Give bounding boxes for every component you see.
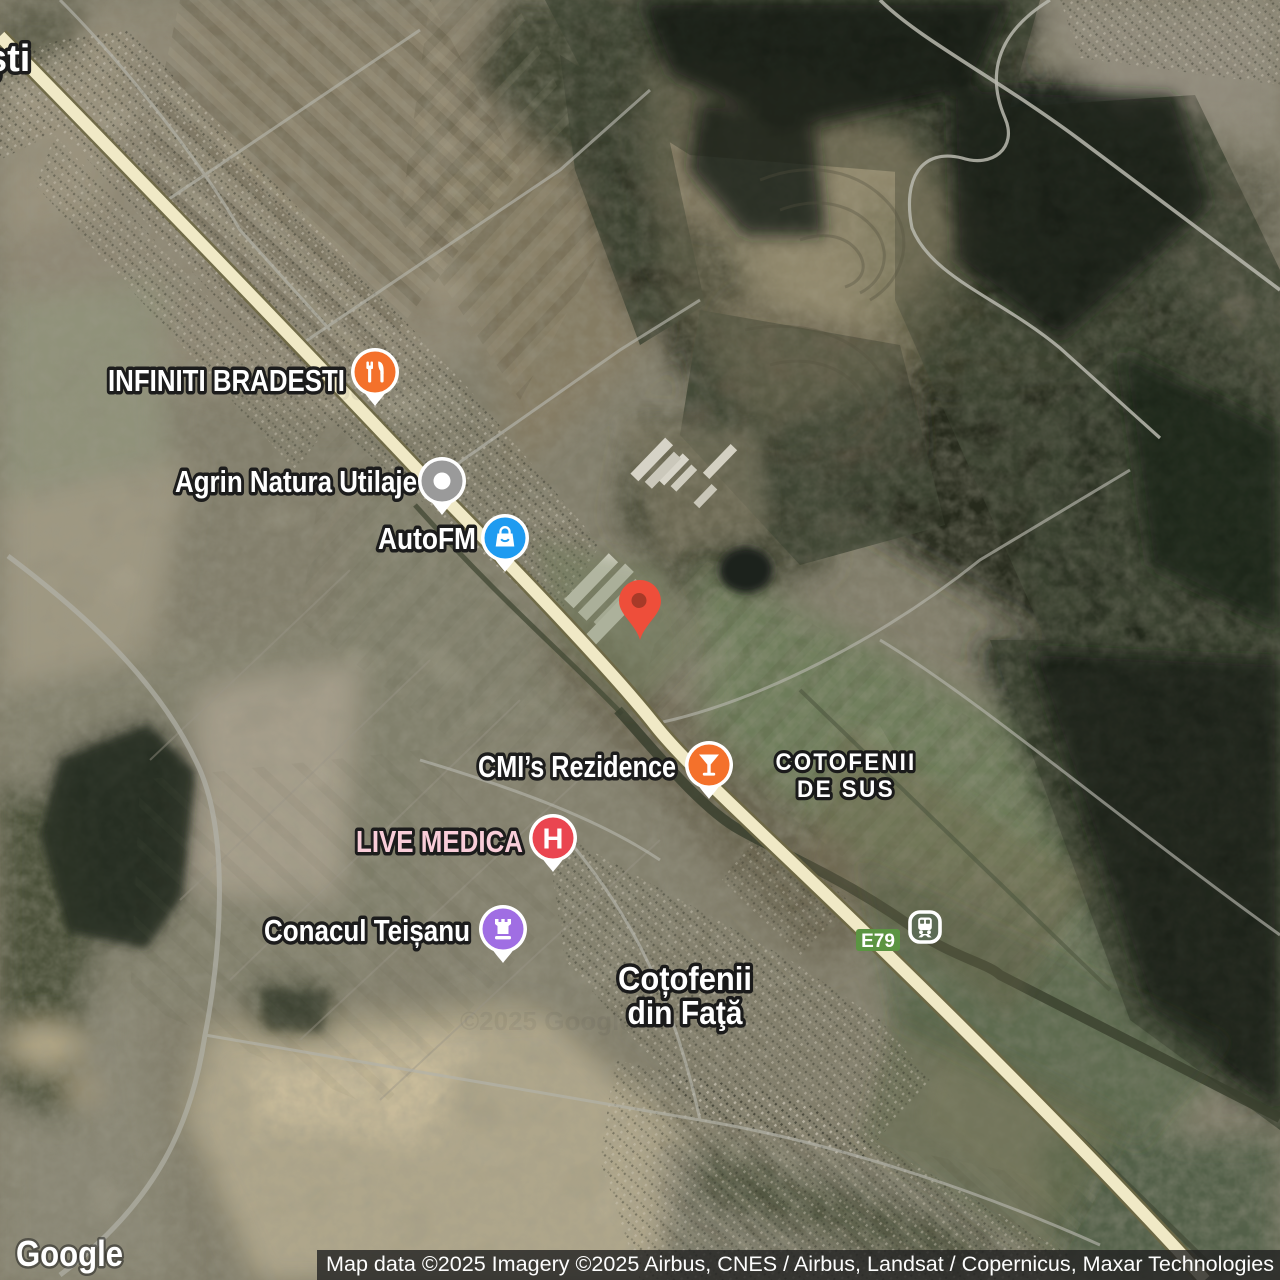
svg-text:Map data ©2025 Imagery ©2025 A: Map data ©2025 Imagery ©2025 Airbus, CNE… xyxy=(326,1252,1274,1276)
svg-text:INFINITI BRADESTI: INFINITI BRADESTI xyxy=(108,363,345,398)
svg-text:Google: Google xyxy=(16,1233,123,1274)
svg-text:ști: ști xyxy=(0,38,30,80)
svg-text:din Faţă: din Faţă xyxy=(628,994,744,1031)
svg-text:LIVE MEDICA: LIVE MEDICA xyxy=(356,824,523,859)
svg-text:CMI’s Rezidence: CMI’s Rezidence xyxy=(478,749,676,784)
svg-text:©2025 Google: ©2025 Google xyxy=(460,1006,634,1036)
svg-text:DE SUS: DE SUS xyxy=(797,776,895,803)
svg-text:COTOFENII: COTOFENII xyxy=(776,749,917,776)
svg-text:Coțofenii: Coțofenii xyxy=(618,960,752,998)
svg-text:H: H xyxy=(543,824,564,856)
svg-text:Conacul Teișanu: Conacul Teișanu xyxy=(264,913,470,948)
svg-text:AutoFM: AutoFM xyxy=(378,521,476,556)
svg-text:E79: E79 xyxy=(861,931,895,952)
svg-text:Agrin Natura Utilaje: Agrin Natura Utilaje xyxy=(175,464,417,499)
